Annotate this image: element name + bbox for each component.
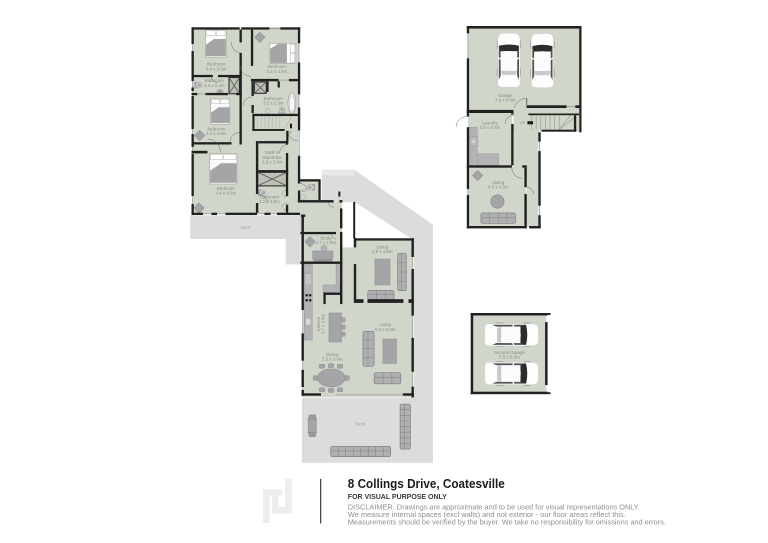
svg-text:Deck: Deck [355,421,366,426]
svg-text:3.9 x 4.5m: 3.9 x 4.5m [372,249,393,254]
svg-text:Deck: Deck [241,225,252,230]
svg-text:UP: UP [520,121,525,125]
svg-text:3.2 x 2.5m: 3.2 x 2.5m [263,101,284,106]
svg-text:3.4 x 3.5m: 3.4 x 3.5m [206,66,227,71]
svg-text:7.6 x 6.0m: 7.6 x 6.0m [495,98,516,103]
svg-text:2.2 x 3.0m: 2.2 x 3.0m [259,199,280,204]
svg-text:3.4 x 3.5m: 3.4 x 3.5m [206,131,227,136]
svg-text:2.7 x 2.9m: 2.7 x 2.9m [316,240,337,245]
svg-text:5.5 x 3.9m: 5.5 x 3.9m [322,357,343,362]
svg-text:WC: WC [301,189,307,193]
svg-text:8 Collings Drive, Coatesville: 8 Collings Drive, Coatesville [348,476,505,491]
svg-text:5.5 x 6.0m: 5.5 x 6.0m [375,327,396,332]
svg-text:4.4 x 4.5m: 4.4 x 4.5m [216,191,237,196]
svg-text:2.2 x 2.0m: 2.2 x 2.0m [262,160,283,165]
svg-text:5.5 x 5.5m: 5.5 x 5.5m [499,354,520,359]
svg-text:3.2 x 4.0m: 3.2 x 4.0m [267,69,288,74]
svg-text:3.7 x 3.5m: 3.7 x 3.5m [321,314,326,334]
svg-text:3.4 x 1.4m: 3.4 x 1.4m [204,83,225,88]
svg-text:4.3 x 4.3m: 4.3 x 4.3m [488,185,509,190]
svg-text:3.0 x 3.7m: 3.0 x 3.7m [480,125,501,130]
svg-text:Measurements should be verifie: Measurements should be verified by the b… [348,518,666,527]
svg-text:FOR VISUAL PURPOSE ONLY: FOR VISUAL PURPOSE ONLY [348,492,447,501]
